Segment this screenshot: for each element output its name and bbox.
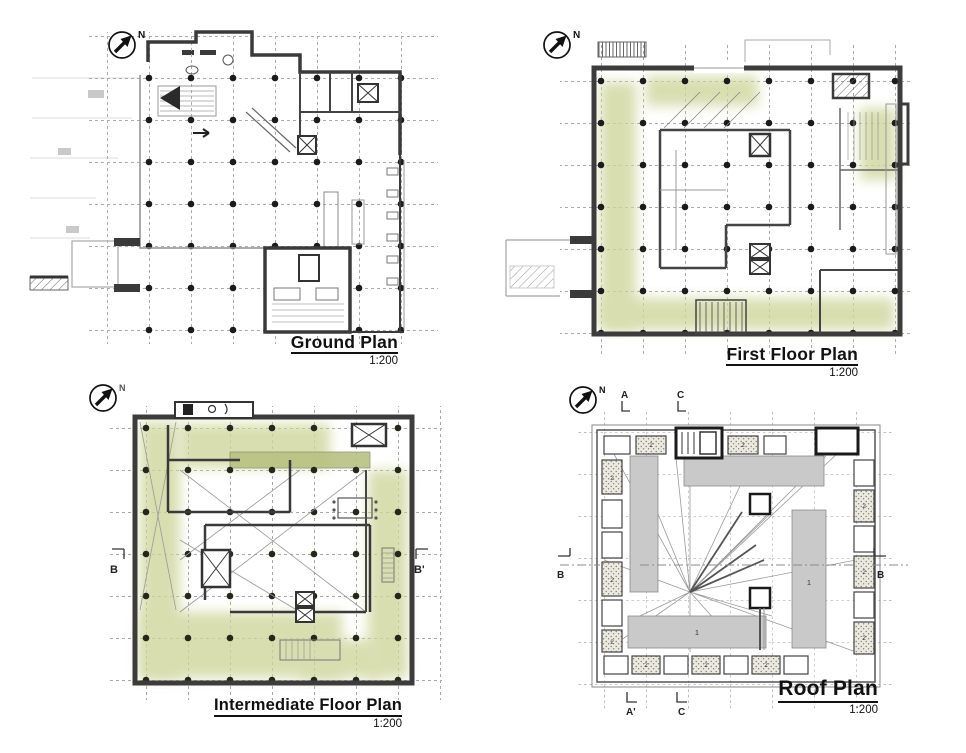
first-floor-title-block: First Floor Plan 1:200 [660, 345, 858, 379]
intermediate-column-dots [125, 407, 421, 701]
intermediate-title-block: Intermediate Floor Plan 1:200 [170, 697, 402, 730]
svg-text:C: C [677, 390, 684, 401]
section-letter: B [110, 564, 118, 576]
svg-text:2: 2 [649, 442, 653, 449]
svg-text:A': A' [626, 707, 636, 718]
ground-plan-title: Ground Plan [291, 333, 398, 354]
svg-text:2: 2 [610, 639, 614, 646]
svg-text:2: 2 [610, 475, 614, 482]
north-arrow-icon [109, 32, 135, 58]
svg-text:2: 2 [610, 577, 614, 584]
svg-text:B: B [557, 570, 564, 581]
first-floor-plan-drawing: N [506, 30, 910, 354]
svg-text:2: 2 [764, 662, 768, 669]
ground-plan-drawing: N [30, 30, 438, 345]
ground-north-label: N [138, 30, 145, 41]
intermediate-plan-drawing: B B' N [90, 383, 442, 701]
intermediate-scale: 1:200 [170, 718, 402, 730]
roof-plan-title: Roof Plan [778, 678, 878, 703]
first-floor-title: First Floor Plan [726, 345, 858, 366]
first-shaft-box [833, 74, 869, 98]
ground-plan-title-block: Ground Plan 1:200 [200, 333, 398, 367]
svg-text:2: 2 [862, 503, 866, 510]
svg-text:2: 2 [862, 569, 866, 576]
svg-text:2: 2 [644, 662, 648, 669]
ground-plan-scale: 1:200 [200, 355, 398, 367]
north-arrow-icon [544, 32, 570, 58]
roof-bar-label: 1 [695, 628, 699, 637]
first-floor-scale: 1:200 [660, 367, 858, 379]
ground-lower-room [265, 248, 350, 332]
svg-text:2: 2 [862, 635, 866, 642]
svg-text:A: A [621, 390, 628, 401]
svg-text:B: B [877, 570, 884, 581]
first-roof-grille [598, 42, 646, 57]
intermediate-title: Intermediate Floor Plan [214, 697, 402, 717]
intermediate-north-label: N [119, 383, 126, 393]
roof-title-block: Roof Plan 1:200 [660, 678, 878, 716]
north-arrow-icon [90, 385, 116, 411]
floor-plans-sheet: N [0, 0, 966, 753]
first-north-label: N [573, 30, 580, 41]
roof-plan-scale: 1:200 [660, 704, 878, 716]
roof-bar-label: 1 [807, 578, 811, 587]
section-letter: B' [414, 564, 425, 576]
roof-north-label: N [599, 385, 606, 395]
roof-plan-drawing: 1 1 2 2 [557, 385, 908, 718]
svg-text:2: 2 [741, 442, 745, 449]
north-arrow-icon [570, 387, 596, 413]
svg-text:2: 2 [704, 662, 708, 669]
